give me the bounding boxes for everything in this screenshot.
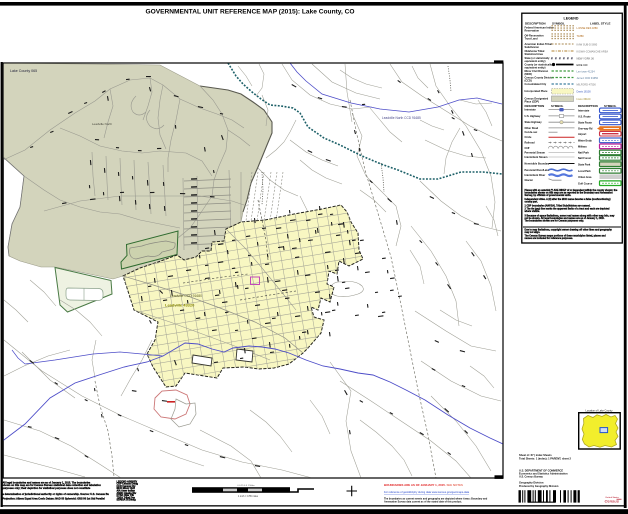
svg-text:Airport: Airport [578, 133, 587, 136]
svg-text:Place (CDP): Place (CDP) [525, 99, 540, 103]
svg-text:Produced by Geography Division: Produced by Geography Division [519, 485, 559, 488]
svg-text:boundaries shown on this map a: boundaries shown on this map are as repo… [525, 192, 614, 195]
svg-text:Cliff: Cliff [525, 147, 530, 150]
svg-text:Intermittent Stream: Intermittent Stream [525, 156, 549, 159]
svg-text:Incorporated Place: Incorporated Place [525, 89, 549, 93]
svg-text:1 CDP boundaries (ANVSA). Trib: 1 CDP boundaries (ANVSA). Tribal Subdivi… [525, 204, 591, 207]
svg-text:Other Road: Other Road [525, 127, 539, 130]
svg-text:names are included for referen: names are included for reference purpose… [525, 238, 574, 240]
svg-text:Interstate: Interstate [578, 110, 590, 113]
svg-text:Trust Land: Trust Land [525, 36, 538, 40]
svg-text:Due to map limitations, copyri: Due to map limitations, copyright owner … [525, 229, 613, 232]
svg-text:DESCRIPTION: DESCRIPTION [525, 22, 546, 26]
svg-text:2 The tie (gap) line marks the: 2 The tie (gap) line marks the apparent … [525, 208, 610, 211]
svg-text:Annexation Survey data current: Annexation Survey data current as of the… [384, 500, 462, 503]
svg-text:U.S. Highway: U.S. Highway [525, 115, 541, 118]
svg-text:SYMBOL: SYMBOL [604, 104, 617, 108]
svg-text:Independent cities. A (it) aft: Independent cities. A (it) after the MCD… [525, 198, 611, 201]
svg-text:Cul-de-sac: Cul-de-sac [525, 131, 538, 134]
svg-text:For reference of geoGRAphy: For reference of geoGRAphy during data w… [384, 490, 470, 494]
svg-text:Natl Park: Natl Park [578, 152, 589, 155]
svg-text:MILFORD 47500: MILFORD 47500 [577, 82, 597, 86]
svg-text:equivalent entity): equivalent entity) [525, 59, 546, 63]
svg-text:GOVERNMENTAL UNIT REFERENCE MA: GOVERNMENTAL UNIT REFERENCE MAP (2015): … [145, 9, 354, 16]
svg-text:Subdivision: Subdivision [525, 45, 540, 49]
svg-text:SDAISA St Desig: SDAISA St Desig [117, 499, 137, 502]
svg-text:State Highway: State Highway [525, 121, 543, 124]
svg-text:Survey, by officials of govern: Survey, by officials of governmental uni… [525, 194, 572, 197]
svg-text:Total Sheets: 1 (index); 1 PAR: Total Sheets: 1 (index); 1 PARENT; sheet… [519, 456, 571, 460]
svg-text:(CCD): (CCD) [525, 78, 532, 82]
svg-text:DESCRIPTION: DESCRIPTION [578, 104, 598, 108]
svg-text:Intermittent River: Intermittent River [525, 174, 546, 177]
svg-text:1 inch = 0.55 miles: 1 inch = 0.55 miles [238, 495, 259, 498]
svg-text:T1880: T1880 [577, 34, 585, 38]
svg-text:Leadville North CCD 91685: Leadville North CCD 91685 [382, 116, 421, 120]
svg-text:Interstate: Interstate [525, 109, 537, 112]
svg-text:Leadville North: Leadville North [92, 122, 112, 126]
svg-text:where visible.: where visible. [525, 211, 541, 213]
svg-text:KAW SUB-D 5690: KAW SUB-D 5690 [577, 42, 598, 46]
svg-text:LABEL STYLE: LABEL STYLE [590, 22, 610, 26]
svg-text:Projection: Albers Equal Area: Projection: Albers Equal Area Conic Datu… [3, 498, 106, 501]
svg-text:Railroad: Railroad [525, 142, 535, 145]
svg-text:Water Body: Water Body [578, 139, 592, 142]
svg-text:The boundaries shown are for C: The boundaries shown are for Census purp… [525, 221, 585, 223]
svg-text:Davis 18100: Davis 18100 [577, 89, 592, 93]
svg-text:Jemez CCD 91650: Jemez CCD 91650 [577, 76, 599, 80]
svg-text:NEW YORK 36: NEW YORK 36 [577, 56, 595, 60]
svg-text:purposes only; their depiction: purposes only; their depiction for stati… [3, 487, 91, 490]
svg-text:Circle: Circle [525, 136, 533, 139]
svg-text:LEGEND: LEGEND [564, 17, 579, 21]
svg-text:Consolidated City: Consolidated City [525, 82, 547, 86]
svg-text:Golf Course: Golf Course [578, 182, 593, 185]
svg-text:Urban Area: Urban Area [578, 176, 592, 179]
svg-text:not be shown. All legal bounda: not be shown. All legal boundaries and n… [525, 217, 605, 220]
svg-text:equivalent entity): equivalent entity) [525, 65, 546, 69]
svg-text:Glacier: Glacier [525, 179, 534, 182]
svg-text:county part.: county part. [525, 201, 539, 204]
svg-text:One-way Rd: One-way Rd [578, 128, 593, 131]
svg-text:State Route: State Route [578, 122, 593, 125]
svg-text:SYMBOL: SYMBOL [552, 22, 565, 26]
svg-text:State Park: State Park [578, 163, 591, 166]
svg-text:a determination of jurisdictio: a determination of jurisdictional author… [3, 493, 110, 496]
svg-text:KIOWA-COMANCHE AREA: KIOWA-COMANCHE AREA [577, 49, 609, 53]
svg-text:3 Because of space limitations: 3 Because of space limitations, some roa… [525, 214, 616, 217]
svg-text:U.S. Census Bureau: U.S. Census Bureau [519, 476, 543, 479]
svg-text:Lee town 41234: Lee town 41234 [577, 69, 596, 73]
svg-text:Natl Forest: Natl Forest [578, 157, 591, 160]
svg-text:Perennial Stream: Perennial Stream [525, 151, 546, 154]
svg-text:SYMBOL: SYMBOL [551, 104, 564, 108]
svg-text:Nonvisible Boundary: Nonvisible Boundary [525, 163, 551, 166]
svg-text:Perennial River/Lake: Perennial River/Lake [525, 169, 550, 172]
svg-text:L'ANSE RES 1880: L'ANSE RES 1880 [577, 26, 599, 30]
svg-text:Reservation: Reservation [525, 28, 540, 32]
svg-text:Location of Lake County: Location of Lake County [586, 409, 614, 412]
svg-text:The Census Bureau maps portion: The Census Bureau maps portions of these… [525, 235, 607, 238]
svg-text:BOUNDARIES ARE AS OF JANUARY 1: BOUNDARIES ARE AS OF JANUARY 1, 2015. SE… [384, 483, 463, 487]
svg-text:ERIE 029: ERIE 029 [577, 63, 588, 67]
svg-text:Lake County 065: Lake County 065 [10, 69, 37, 73]
svg-text:Local Park: Local Park [578, 170, 591, 173]
svg-text:0 0.25 0.5 1 Miles: 0 0.25 0.5 1 Miles [237, 485, 255, 487]
svg-text:Sheet ct: 67 | index Sheets: Sheet ct: 67 | index Sheets [519, 453, 552, 457]
svg-text:may not align.: may not align. [525, 231, 541, 234]
svg-text:(MCD): (MCD) [525, 72, 533, 76]
svg-text:Leadville 43320: Leadville 43320 [165, 303, 195, 308]
svg-text:DESCRIPTION: DESCRIPTION [525, 104, 545, 108]
svg-text:Leadville CCD 91680: Leadville CCD 91680 [170, 294, 202, 298]
svg-text:Places with an asterisk (*) AR: Places with an asterisk (*) ARE INDEP of… [525, 189, 618, 192]
svg-text:U.S. Route: U.S. Route [578, 116, 591, 119]
svg-text:Military: Military [578, 145, 587, 148]
svg-text:Insco 36100: Insco 36100 [577, 97, 591, 101]
svg-text:Statistical Area: Statistical Area [525, 52, 544, 56]
